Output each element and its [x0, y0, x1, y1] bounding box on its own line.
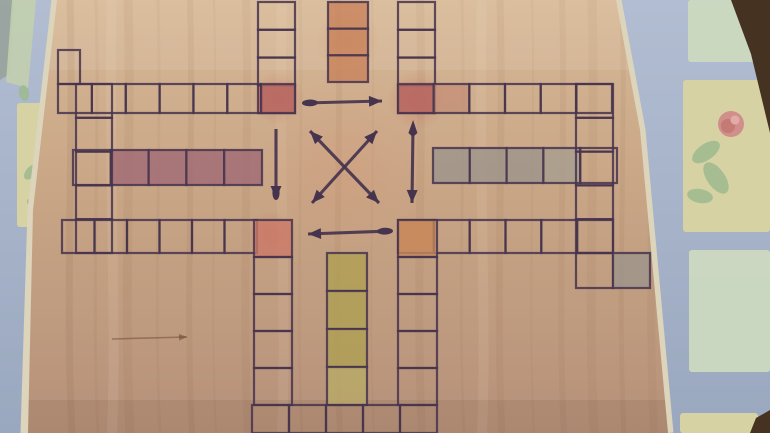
left-arm-middle-strip-cell-4-purple: [186, 150, 224, 185]
right-arm-middle-strip-cell-3-gray: [507, 148, 544, 183]
right-arm-middle-strip-cell-2-gray: [470, 148, 507, 183]
right-arm-gray-home-cell: [613, 253, 650, 288]
right-arm-gray-home-cell-cell-1-gray: [613, 253, 650, 288]
bottom-arm-middle-strip-cell-4-yellow_light: [327, 367, 367, 405]
top-arm-middle-strip-cell-2-orange: [328, 29, 368, 56]
right-arm-middle-strip-cell-1-gray: [433, 148, 470, 183]
left-arm-middle-strip-cell-2-purple: [111, 150, 149, 185]
right-arm-top-strip-cell-2-orange_faint: [434, 84, 470, 113]
right-yellow-sliver: [680, 413, 758, 433]
bottom-arm-left-strip-cell-1-red_salmon: [254, 220, 292, 257]
bottom-arm-right-strip-cell-1-orange_corner: [398, 220, 437, 257]
right-arm-middle-strip-cell-4-gray_light: [543, 148, 580, 183]
right-arm-top-strip-cell-1-red: [398, 84, 434, 113]
right-green-panel-mid: [689, 250, 770, 372]
top-arm-middle-strip-cell-3-orange: [328, 55, 368, 82]
top-arm-middle-strip-cell-1-orange: [328, 2, 368, 29]
bottom-arm-middle-strip-cell-1-yellow: [327, 253, 367, 291]
bottom-arm-middle-strip-cell-2-yellow: [327, 291, 367, 329]
bottom-arm-middle-strip: [327, 253, 367, 405]
left-arm-middle-strip-cell-3-purple: [149, 150, 187, 185]
pink-rose: [718, 111, 744, 137]
photo-ludo-board-on-tablecloth: [0, 0, 770, 433]
bottom-arm-middle-strip-cell-3-yellow: [327, 329, 367, 367]
left-arm-middle-strip-cell-5-purple: [224, 150, 262, 185]
board-photo-svg: [0, 0, 770, 433]
top-arm-middle-strip: [328, 2, 368, 82]
left-arm-top-strip-cell-7-red: [261, 84, 295, 113]
